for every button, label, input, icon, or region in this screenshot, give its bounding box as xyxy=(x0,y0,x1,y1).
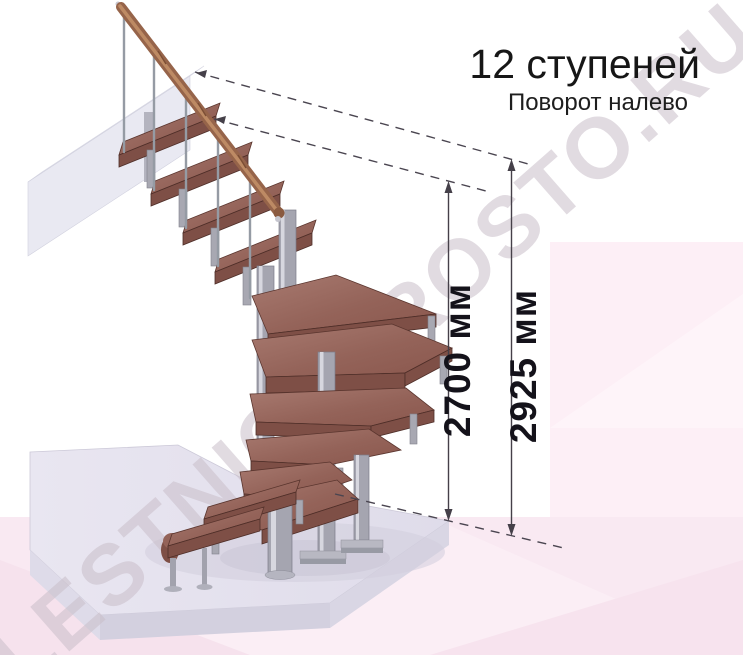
dimension-label-2925: 2925 мм xyxy=(503,289,544,443)
thin-post-base xyxy=(197,584,213,590)
base-plate-front xyxy=(341,548,383,553)
page-title: 12 ступеней xyxy=(469,41,700,87)
newel-base xyxy=(265,571,295,580)
base-plate-front xyxy=(300,559,346,564)
support-post xyxy=(428,316,435,342)
thin-post xyxy=(202,548,207,586)
base-plate xyxy=(341,540,383,548)
staircase-diagram: LESTNICI-PROSTO.RU xyxy=(0,0,743,655)
handrail-end-ball xyxy=(275,216,281,222)
dimension-label-2700: 2700 мм xyxy=(437,283,478,437)
scene: LESTNICI-PROSTO.RU xyxy=(0,0,743,655)
thin-post-base xyxy=(164,586,182,592)
support-post xyxy=(410,414,417,444)
support-post xyxy=(296,500,303,524)
base-plate xyxy=(300,551,346,559)
page-subtitle: Поворот налево xyxy=(508,89,688,116)
thin-post xyxy=(170,558,176,588)
